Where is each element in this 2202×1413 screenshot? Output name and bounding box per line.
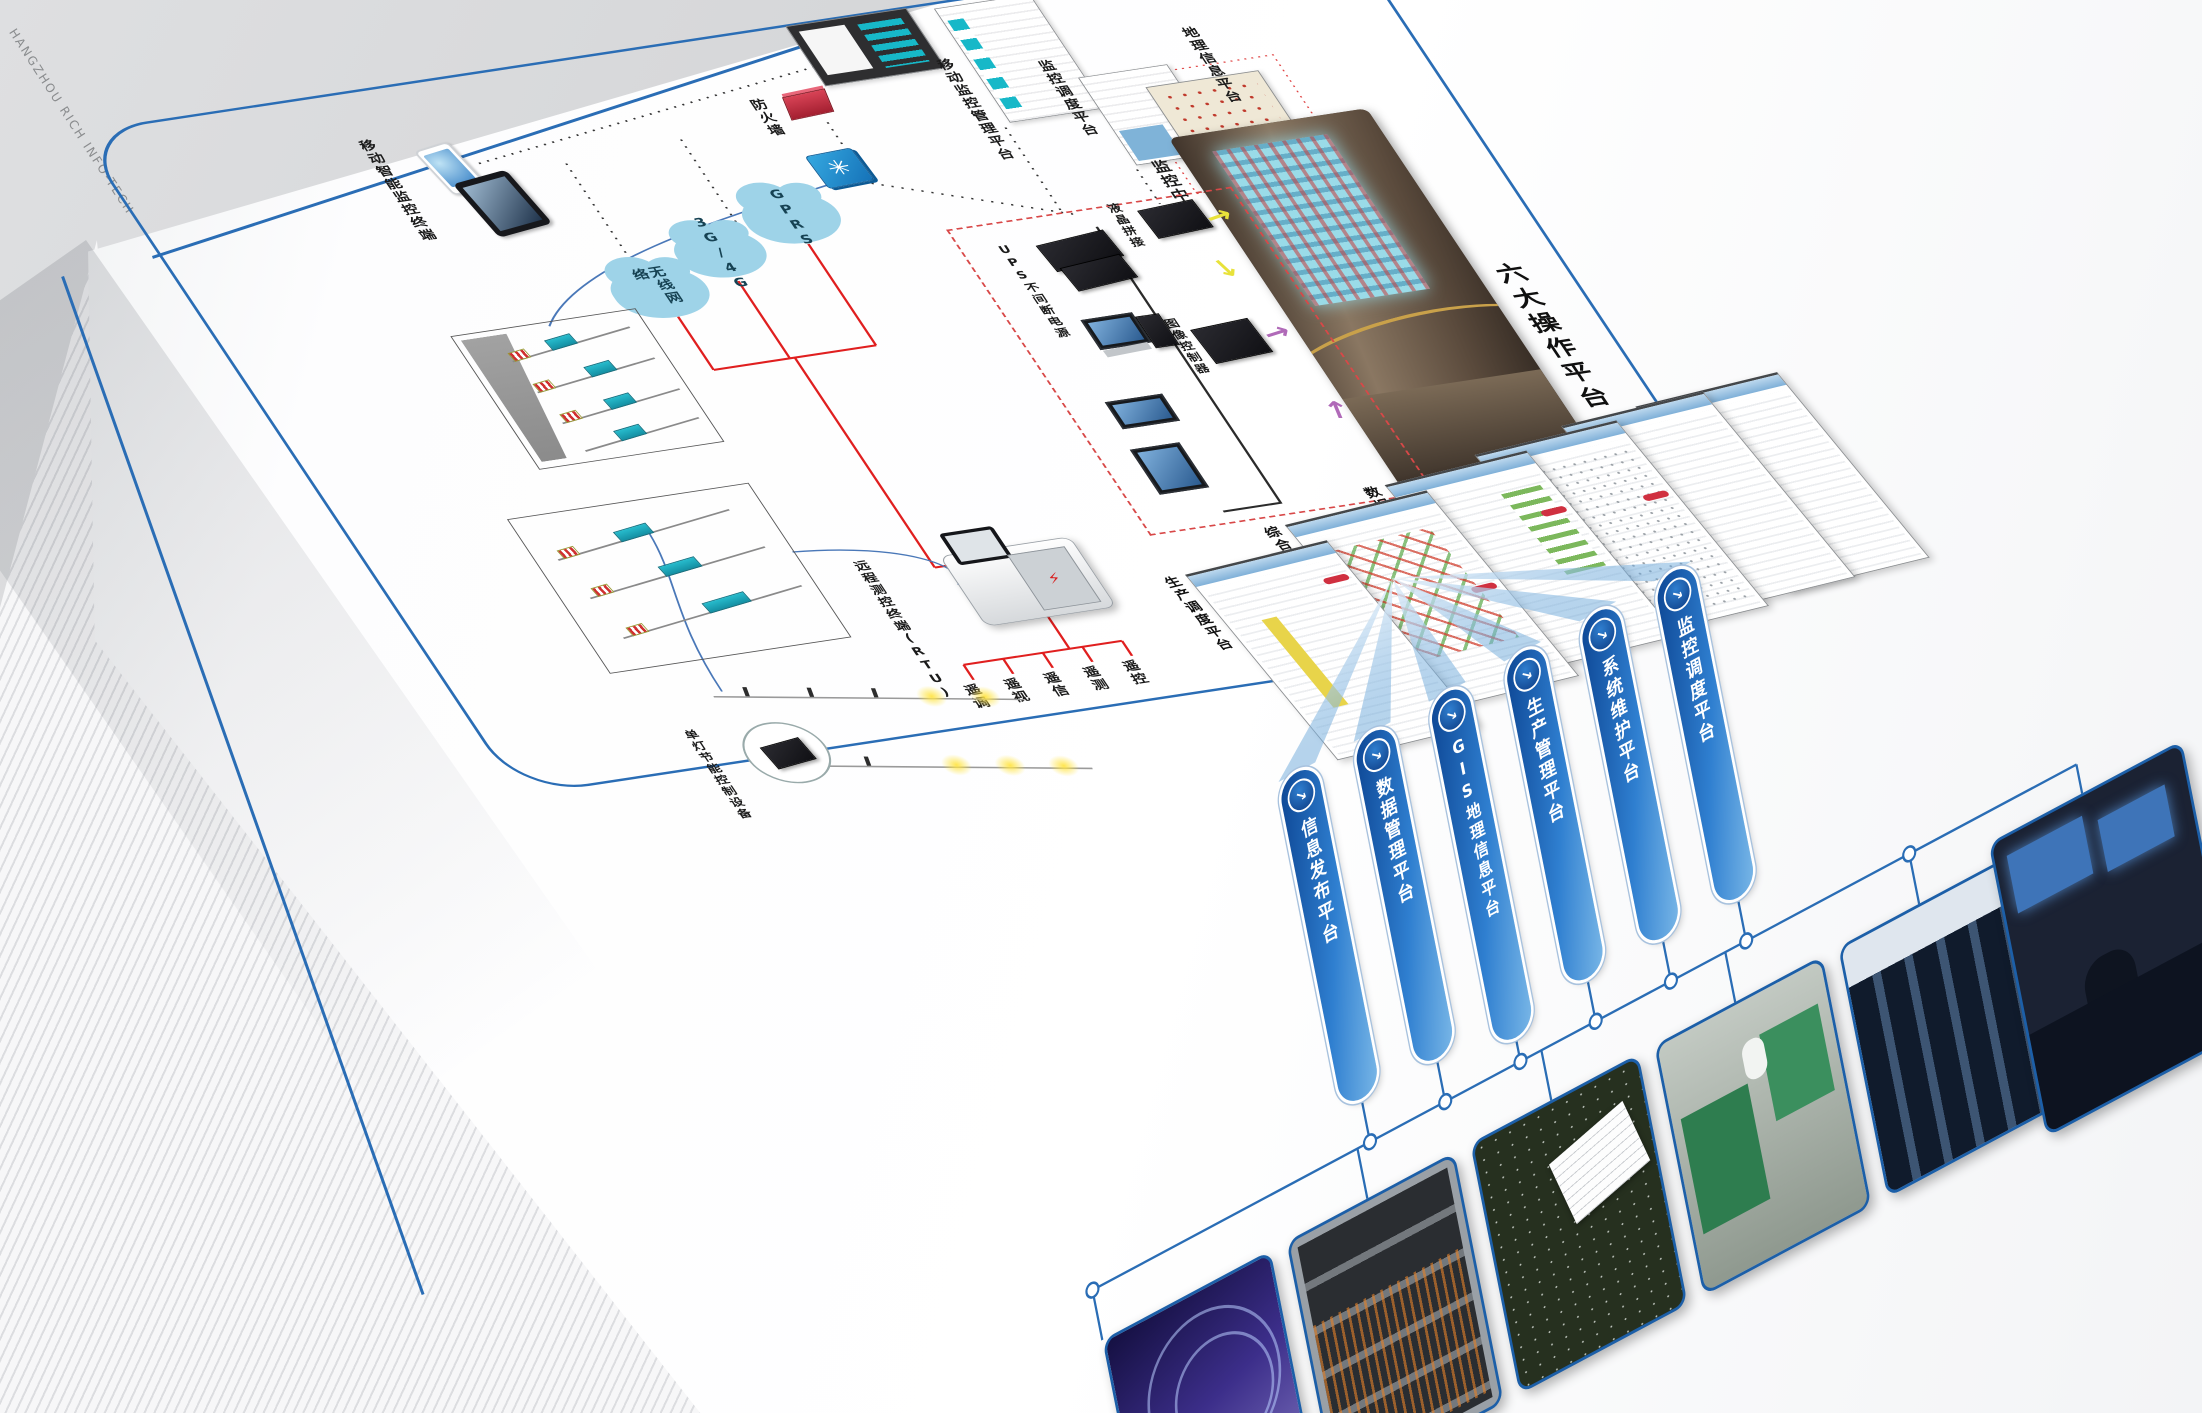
laptop-screen	[1112, 398, 1173, 425]
rtu-monitor-screen	[945, 530, 1008, 562]
glowing-screen	[2007, 816, 2094, 914]
lamp-row	[713, 696, 1025, 700]
control-cabinet-icon	[532, 379, 556, 392]
machine-graphic	[1759, 1004, 1835, 1122]
lamp-glow	[966, 686, 1004, 708]
lamp-sign-icon	[544, 333, 578, 350]
streetlight-icon	[864, 757, 872, 766]
lamp-sign-icon	[658, 556, 703, 577]
streetlight-icon	[871, 688, 879, 697]
arrow-circle-icon: →	[1509, 655, 1545, 694]
glowing-screen	[2098, 784, 2175, 872]
purple-up-arrow-icon: →	[1314, 400, 1359, 420]
arrow-circle-icon: →	[1660, 575, 1696, 614]
pole-row	[537, 357, 655, 393]
streetlight-icon	[742, 687, 750, 696]
arrow-circle-icon: →	[1584, 615, 1620, 654]
arrow-circle-icon: →	[1359, 735, 1395, 774]
lamp-sign-icon	[613, 523, 654, 543]
arrow-circle-icon: →	[1434, 695, 1470, 734]
lamp-sign-icon	[613, 424, 647, 441]
brochure-photo: HANGZHOU RICH INFO-TECH	[0, 0, 2202, 1413]
control-cabinet-icon	[590, 584, 614, 597]
lamp-controller-icon	[760, 737, 817, 769]
pole-row	[623, 585, 802, 639]
lamp-sign-icon	[583, 360, 617, 377]
control-cabinet-icon	[625, 623, 649, 636]
lamp-sign-icon	[701, 591, 751, 613]
workstation-screen	[1088, 317, 1145, 346]
bolt-icon: ⚡	[1043, 570, 1066, 588]
pole-row	[562, 388, 680, 424]
arrow-circle-icon: →	[1284, 776, 1320, 815]
streetlight-icon	[807, 688, 815, 697]
lamp-controller-circle	[727, 717, 846, 789]
switch-star-glyph: ✳	[821, 155, 859, 181]
pole-row	[512, 326, 630, 362]
pole-row	[558, 509, 730, 561]
machine-graphic	[1681, 1083, 1771, 1234]
control-cabinet-icon	[557, 546, 581, 559]
lamp-glow	[913, 686, 951, 708]
control-cabinet-icon	[559, 410, 583, 423]
pole-row	[585, 417, 700, 452]
lamp-sign-icon	[603, 392, 637, 409]
gprs-cloud-label: GPRS	[764, 186, 820, 248]
